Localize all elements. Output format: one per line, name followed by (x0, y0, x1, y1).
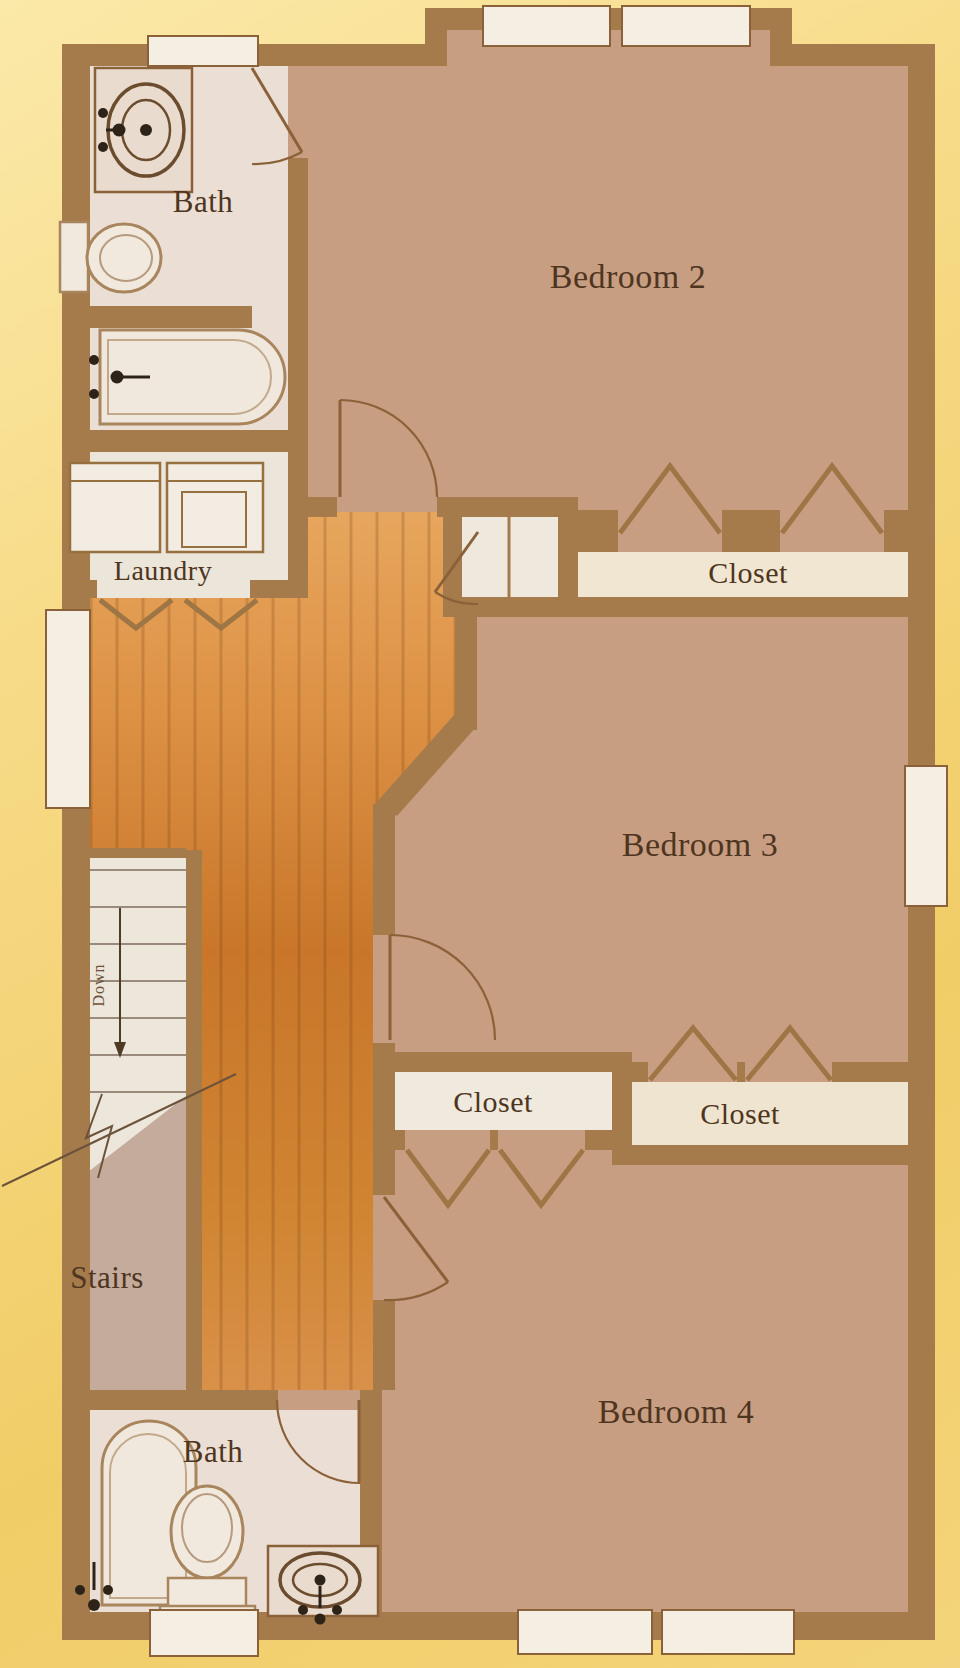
window-hall-left (46, 610, 90, 808)
window-bedroom-2-b (622, 6, 750, 46)
sink-faucet (98, 108, 108, 118)
floor-plan-page: Bath Bedroom 2 Laundry Closet Bedroom 3 … (0, 0, 960, 1668)
room-label-closet-b4: Closet (453, 1085, 533, 1119)
room-label-bedroom-2: Bedroom 2 (550, 258, 707, 296)
laundry-appliances (70, 463, 263, 552)
tub-faucet (89, 355, 99, 365)
window-bedroom-2-a (483, 6, 610, 46)
toilet-tank (60, 222, 88, 292)
room-label-bedroom-4: Bedroom 4 (598, 1393, 755, 1431)
window-bedroom-4-b (662, 1610, 794, 1654)
window-bedroom-3 (905, 766, 947, 906)
window-bedroom-4-a (518, 1610, 652, 1654)
window-bath-upper (148, 36, 258, 66)
room-label-closet-b2: Closet (708, 556, 788, 590)
sink-lower-faucet (298, 1605, 308, 1615)
room-label-bath-upper: Bath (173, 184, 234, 220)
room-label-bath-lower: Bath (183, 1434, 244, 1470)
stairs-down-label: Down (90, 963, 108, 1006)
room-label-bedroom-3: Bedroom 3 (622, 826, 779, 864)
room-label-closet-b3: Closet (700, 1097, 780, 1131)
room-label-laundry: Laundry (114, 555, 212, 587)
floor-plan-drawing (0, 0, 960, 1668)
room-label-stairs: Stairs (70, 1260, 144, 1296)
window-bath-lower (150, 1610, 258, 1656)
tub-lower-faucet (75, 1585, 85, 1595)
washer (70, 463, 160, 552)
